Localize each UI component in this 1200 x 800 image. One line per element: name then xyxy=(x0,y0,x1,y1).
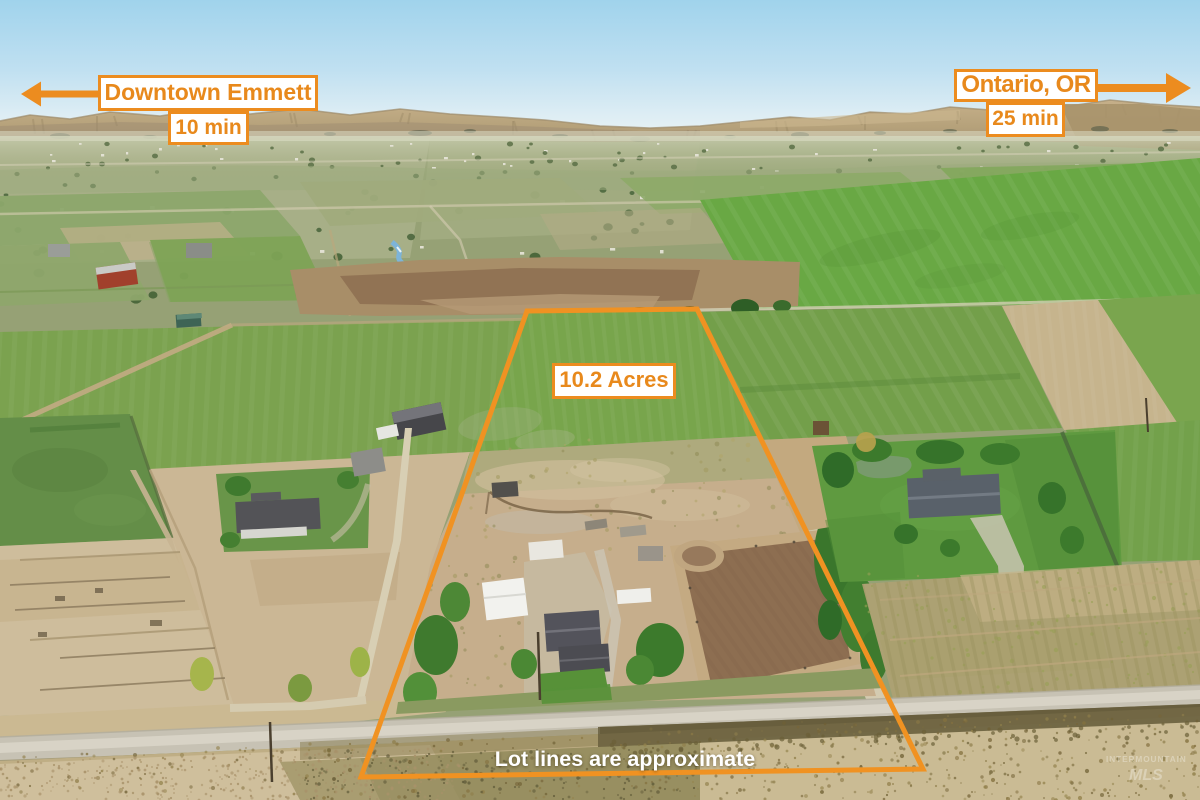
svg-text:MLS: MLS xyxy=(1129,767,1163,784)
svg-text:INTERMOUNTAIN: INTERMOUNTAIN xyxy=(1106,754,1187,764)
